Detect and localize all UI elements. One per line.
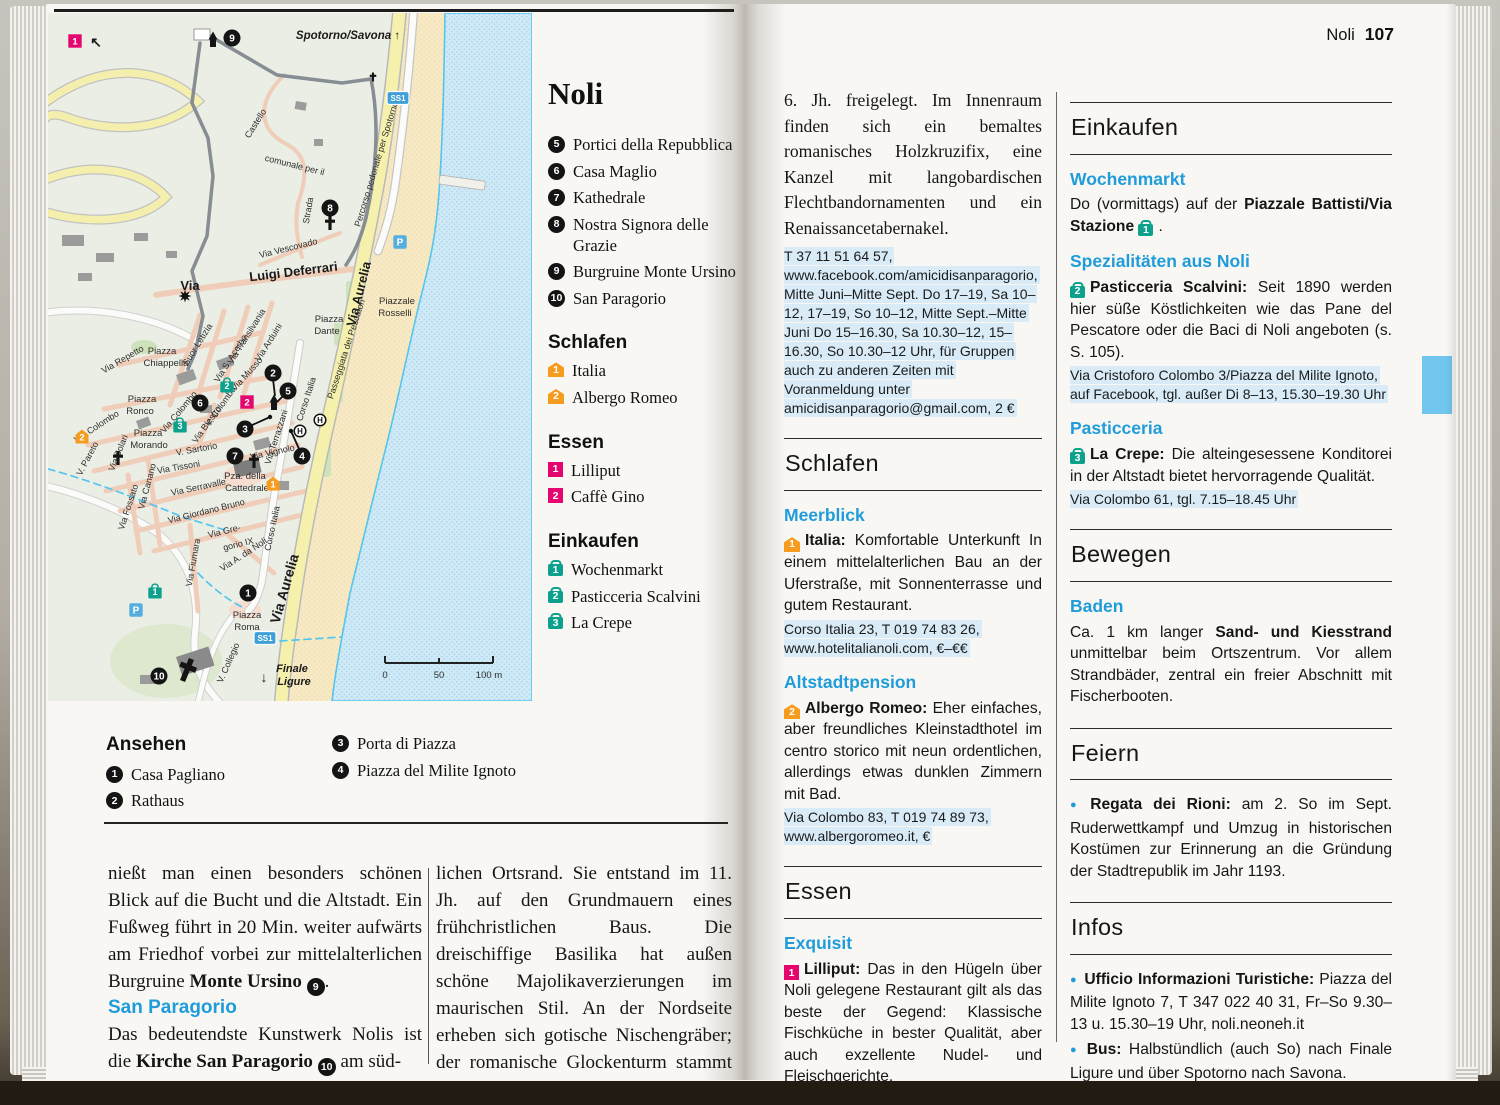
divider-rule	[104, 822, 728, 824]
svg-text:SS1: SS1	[390, 94, 406, 103]
entry-text: Do (vormittags) auf der Piazzale Battist…	[1070, 194, 1392, 237]
book-spread: Spotorno/Savona ↑↖Castellocomunale per i…	[0, 0, 1500, 1105]
svg-text:3: 3	[242, 425, 248, 436]
entry-info: Corso Italia 23, T 019 74 83 26, www.hot…	[784, 620, 1042, 658]
legend-sight: 6Casa Maglio	[548, 162, 740, 183]
legend-sight: 10San Paragorio	[548, 289, 740, 310]
entry-subheading: Wochenmarkt	[1070, 169, 1392, 191]
svg-text:3: 3	[177, 421, 182, 431]
city-map: Spotorno/Savona ↑↖Castellocomunale per i…	[48, 13, 532, 701]
svg-text:2: 2	[224, 381, 229, 391]
entry-info: Via Colombo 83, T 019 74 89 73, www.albe…	[784, 808, 1042, 846]
sight-marker-inline: 10	[318, 1058, 336, 1076]
article-column-2: lichen Ortsrand. Sie entstand im 11. Jh.…	[436, 860, 732, 1105]
left-page: Spotorno/Savona ↑↖Castellocomunale per i…	[46, 4, 746, 1080]
svg-text:Morando: Morando	[130, 440, 168, 451]
page-stack-right	[1452, 6, 1492, 1075]
shop-marker: 3	[1070, 452, 1085, 464]
entry-subheading: Altstadtpension	[784, 672, 1042, 694]
svg-text:H: H	[317, 416, 323, 425]
svg-text:6: 6	[197, 399, 203, 410]
section-essen: Essen	[784, 866, 1042, 919]
sight-marker: 1	[106, 766, 123, 783]
legend-sight: 9Burgruine Monte Ursino	[548, 262, 740, 283]
page-stack-left	[10, 6, 48, 1075]
svg-text:4: 4	[299, 452, 305, 463]
svg-text:↓: ↓	[261, 669, 268, 685]
sight-marker: 4	[332, 762, 349, 779]
svg-text:100 m: 100 m	[476, 670, 502, 681]
bullet-icon	[1070, 971, 1084, 988]
shop-marker: 2	[548, 591, 563, 603]
section-bewegen: Bewegen	[1070, 529, 1392, 582]
map-top-rule	[54, 9, 734, 12]
legend-sight: 7Kathedrale	[548, 188, 740, 209]
svg-text:Piazza: Piazza	[128, 394, 157, 405]
text-column-right: Einkaufen Wochenmarkt Do (vormittags) au…	[1070, 88, 1392, 1088]
sight-marker: 6	[548, 163, 565, 180]
restaurant-marker: 2	[548, 488, 563, 503]
map-title: Noli	[548, 78, 740, 109]
svg-text:Piazza: Piazza	[148, 346, 177, 357]
svg-text:Finale: Finale	[276, 663, 308, 675]
svg-text:5: 5	[285, 387, 291, 398]
svg-text:7: 7	[232, 452, 238, 463]
entry-text: 1Italia: Komfortable Unterkunft In einem…	[784, 530, 1042, 616]
intro-paragraph: 6. Jh. freigelegt. Im Innenraum finden s…	[784, 88, 1042, 241]
sight-marker: 8	[548, 216, 565, 233]
hotel-marker: 1	[548, 362, 564, 377]
section-infos: Infos	[1070, 902, 1392, 955]
svg-text:Piazza: Piazza	[315, 314, 344, 325]
section-feiern: Feiern	[1070, 728, 1392, 781]
entry-subheading: Exquisit	[784, 933, 1042, 955]
entry-subheading: Pasticceria	[1070, 418, 1392, 440]
svg-text:1: 1	[245, 589, 251, 600]
svg-text:8: 8	[327, 204, 333, 215]
svg-text:1: 1	[270, 480, 276, 491]
svg-text:1: 1	[72, 36, 78, 47]
svg-text:0: 0	[382, 670, 387, 681]
shop-marker: 3	[548, 617, 563, 629]
map-canvas: Spotorno/Savona ↑↖Castellocomunale per i…	[48, 13, 532, 701]
section-schlafen: Schlafen	[784, 438, 1042, 491]
column-divider	[428, 868, 429, 1064]
svg-text:2: 2	[244, 397, 249, 408]
legend-sight: 5Portici della Repubblica	[548, 135, 740, 156]
svg-text:2: 2	[79, 433, 84, 444]
svg-text:Piazzale: Piazzale	[379, 296, 415, 307]
bullet-icon	[1070, 796, 1090, 813]
text-column-left: 6. Jh. freigelegt. Im Innenraum finden s…	[784, 88, 1042, 1105]
svg-text:H: H	[297, 427, 303, 436]
svg-text:9: 9	[229, 34, 235, 45]
bullet-entry: Bus: Halbstündlich (auch So) nach Finale…	[1070, 1039, 1392, 1084]
svg-text:50: 50	[434, 670, 445, 681]
sight-marker: 3	[332, 735, 349, 752]
entry-subheading: Baden	[1070, 596, 1392, 618]
article-column-1: nießt man einen besonders schönen Blick …	[108, 860, 422, 1076]
restaurant-marker: 1	[784, 965, 799, 980]
section-einkaufen: Einkaufen	[1070, 102, 1392, 155]
bullet-icon	[1070, 1041, 1087, 1058]
entry-info: Via Cristoforo Colombo 3/Piazza del Mili…	[1070, 366, 1392, 404]
svg-text:10: 10	[153, 672, 165, 683]
entry-info: Voze (5 km von Noli), Via Zuglieno 49, T…	[784, 1091, 1042, 1105]
svg-text:1: 1	[152, 587, 157, 597]
bullet-entry: Regata dei Rioni: am 2. So im Sept. Rude…	[1070, 794, 1392, 882]
bullet-entry: Ufficio Informazioni Turistiche: Piazza …	[1070, 969, 1392, 1036]
sight-marker: 10	[548, 290, 565, 307]
svg-text:Cattedrale: Cattedrale	[225, 483, 269, 494]
legend-group-heading: Essen	[548, 433, 740, 452]
shop-marker: 1	[1138, 224, 1153, 236]
entry-info: Via Colombo 61, tgl. 7.15–18.45 Uhr	[1070, 490, 1392, 509]
entry-text: 2Albergo Romeo: Eher einfaches, aber fre…	[784, 698, 1042, 806]
sight-marker: 5	[548, 136, 565, 153]
svg-text:Pza. della: Pza. della	[224, 471, 266, 482]
svg-text:SS1: SS1	[257, 634, 273, 643]
chapter-tab	[1422, 356, 1452, 414]
entry-subheading: Meerblick	[784, 505, 1042, 527]
shop-marker: 1	[548, 564, 563, 576]
svg-text:2: 2	[270, 369, 276, 380]
svg-text:Via: Via	[180, 278, 200, 293]
chapter-name: Noli	[1326, 26, 1354, 44]
svg-text:Ronco: Ronco	[126, 406, 153, 417]
svg-text:↖: ↖	[90, 34, 102, 50]
entry-text: Ca. 1 km langer Sand- und Kiesstrand unm…	[1070, 622, 1392, 708]
restaurant-marker: 1	[548, 462, 563, 477]
entry-subheading: Spezialitäten aus Noli	[1070, 251, 1392, 273]
article-subheading: San Paragorio	[108, 996, 422, 1021]
entry-text: 1Lilliput: Das in den Hügeln über Noli g…	[784, 959, 1042, 1088]
svg-text:P: P	[133, 606, 140, 617]
legend-sight: 8Nostra Signora delle Grazie	[548, 215, 740, 256]
svg-text:Ligure: Ligure	[277, 676, 311, 688]
hotel-marker: 2	[784, 704, 800, 719]
page-header: Noli107	[1326, 26, 1394, 44]
entry-text: 3La Crepe: Die alteingesessene Konditore…	[1070, 444, 1392, 487]
hotel-marker: 1	[784, 537, 800, 552]
column-divider	[1056, 92, 1057, 1042]
sight-marker: 7	[548, 189, 565, 206]
sight-marker: 2	[106, 792, 123, 809]
sight-marker: 9	[548, 263, 565, 280]
hotel-marker: 2	[548, 389, 564, 404]
svg-text:P: P	[397, 238, 404, 249]
svg-text:Piazza: Piazza	[233, 610, 262, 621]
contact-info: T 37 11 51 64 57, www.facebook.com/amici…	[784, 247, 1042, 418]
right-page: Noli107 6. Jh. freigelegt. Im Innenraum …	[746, 4, 1456, 1080]
legend-group-heading: Einkaufen	[548, 532, 740, 551]
entry-text: 2Pasticceria Scalvini: Seit 1890 werden …	[1070, 277, 1392, 363]
map-legend: Noli 5Portici della Repubblica 6Casa Mag…	[548, 78, 740, 640]
legend-group-heading: Schlafen	[548, 333, 740, 352]
shop-marker: 2	[1070, 286, 1085, 298]
page-number: 107	[1365, 24, 1394, 44]
svg-text:Dante: Dante	[314, 326, 339, 337]
sight-marker-inline: 9	[307, 978, 325, 996]
svg-text:Rosselli: Rosselli	[378, 308, 411, 319]
svg-text:Spotorno/Savona ↑: Spotorno/Savona ↑	[296, 30, 400, 42]
